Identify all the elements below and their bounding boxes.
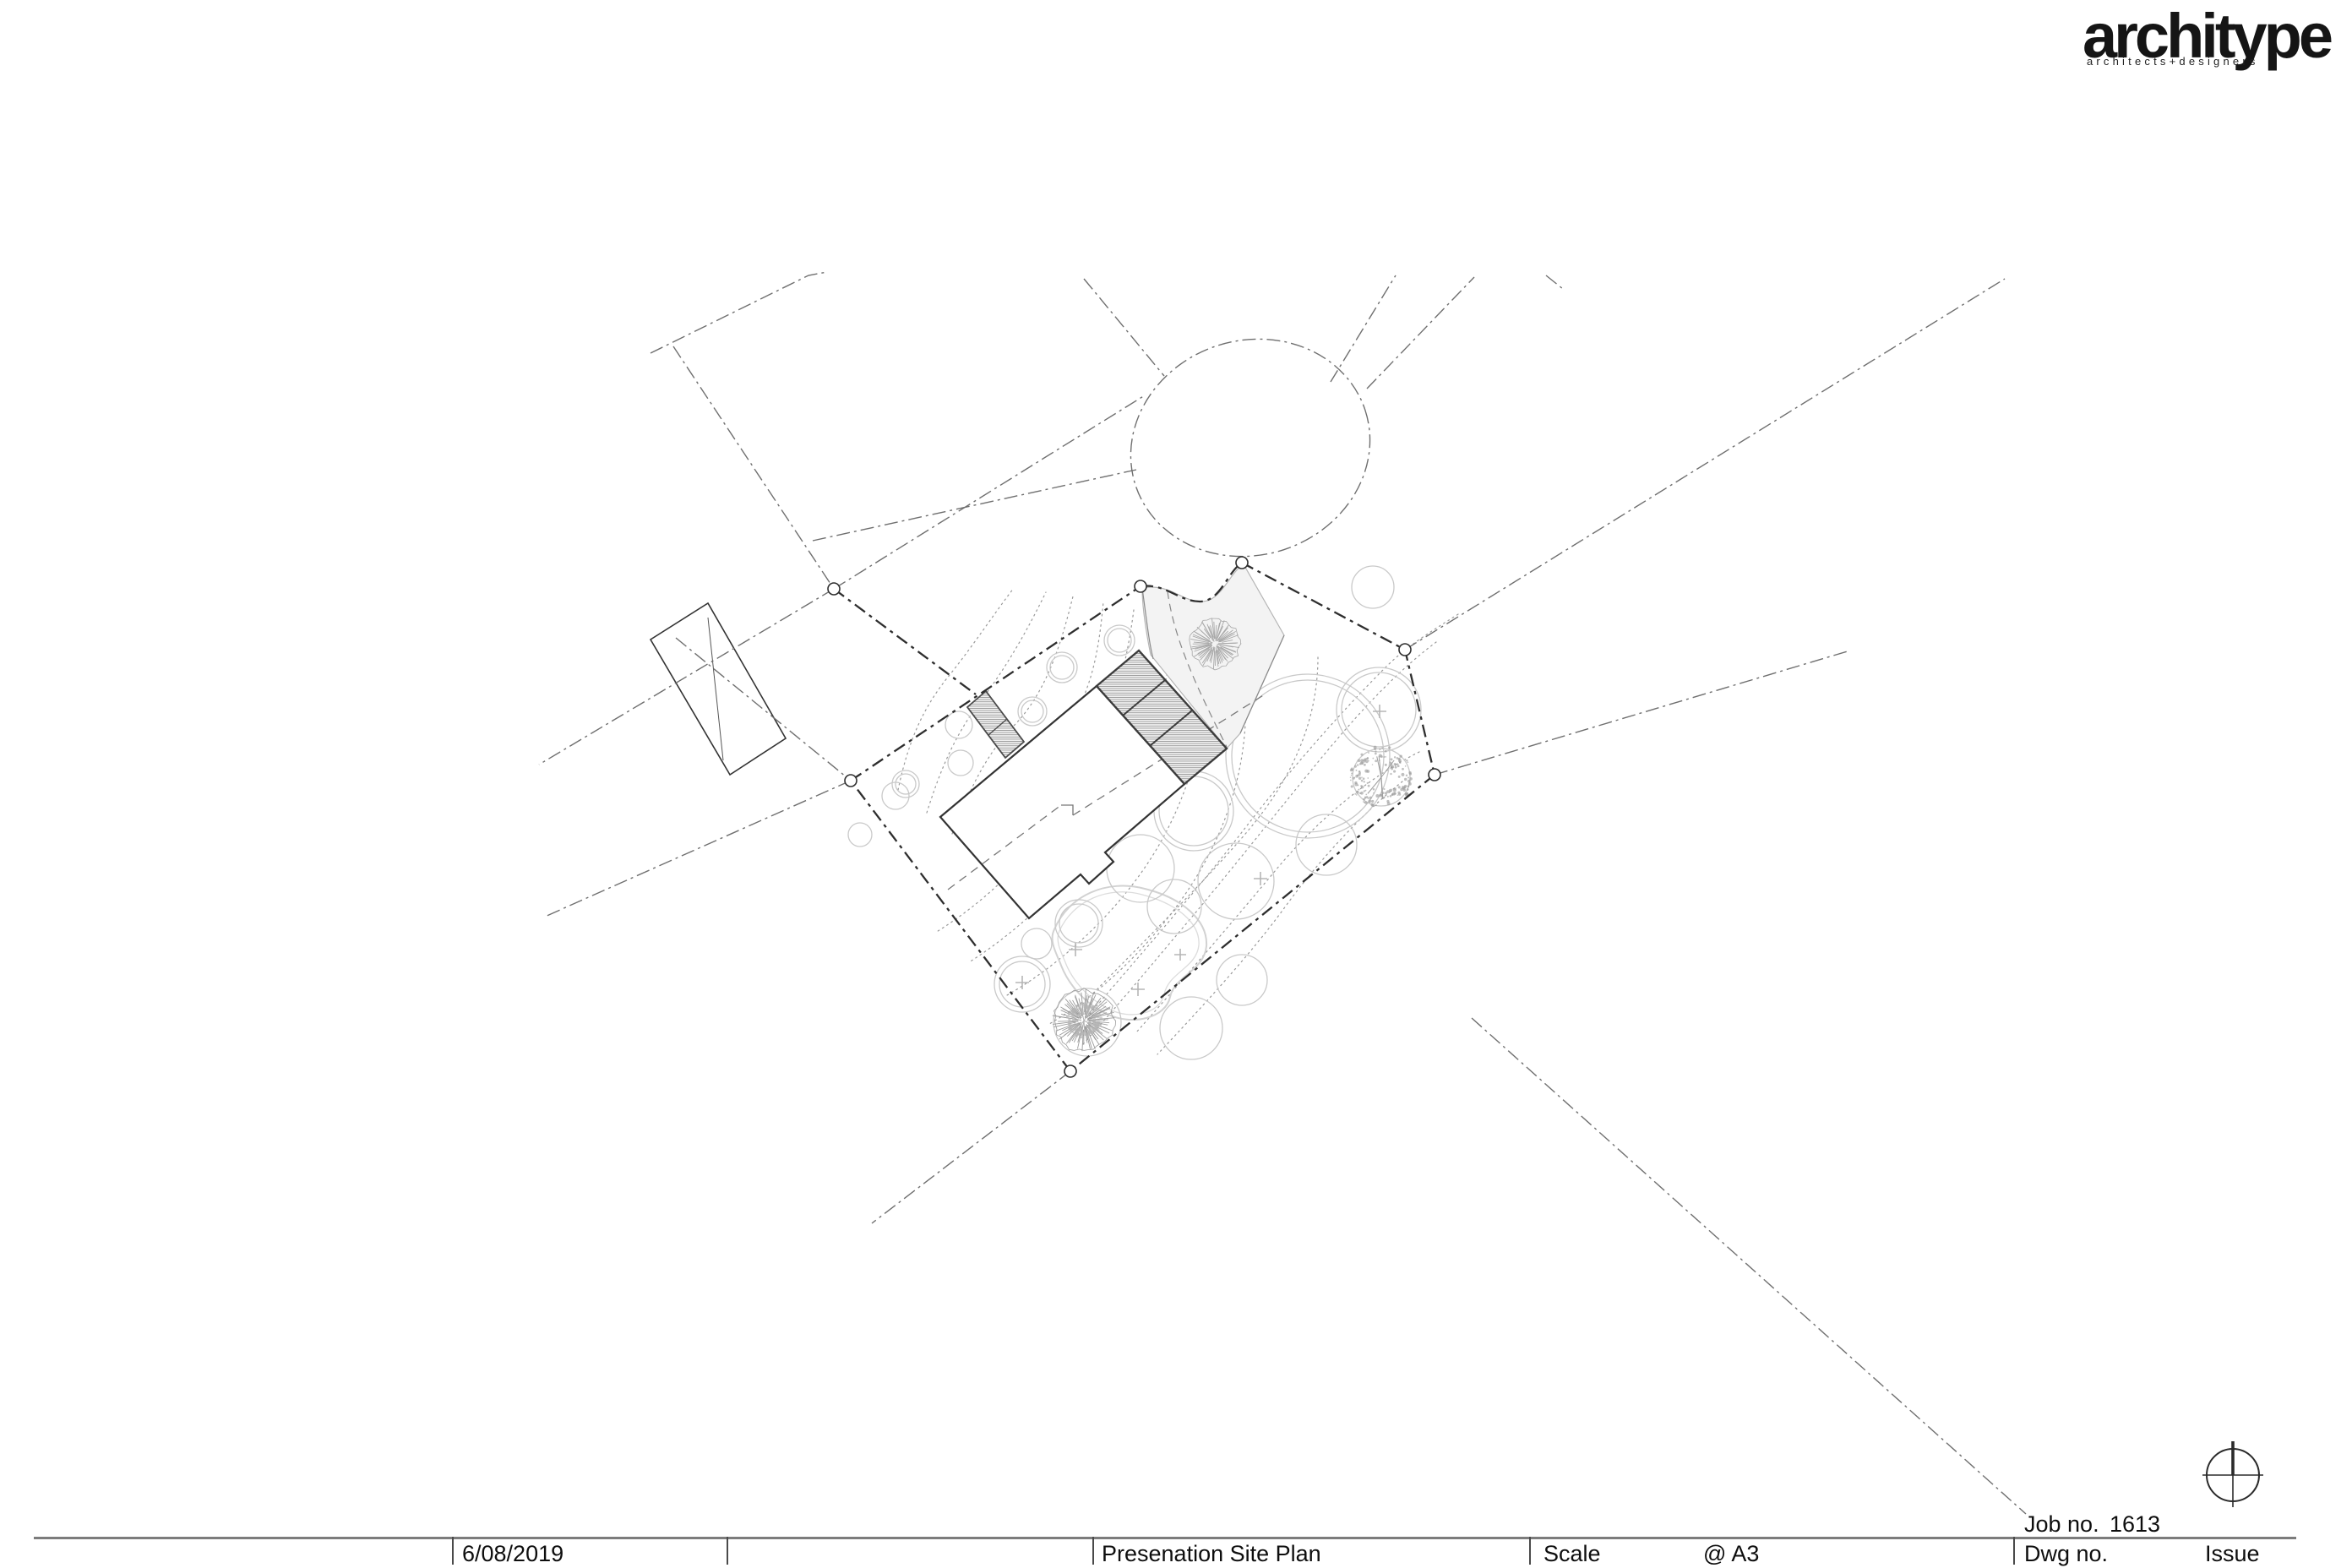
cul-de-sac <box>1102 308 1398 587</box>
dwg-number-label: Dwg no. <box>2024 1541 2108 1567</box>
drawing-title: Presenation Site Plan <box>1102 1541 1321 1567</box>
scale-label: Scale <box>1543 1541 1601 1567</box>
garden-path-outline-2 <box>1058 892 1199 1015</box>
job-number-label: Job no. <box>2024 1511 2099 1538</box>
title-block-rule <box>34 1537 2296 1539</box>
logo: architype architects+designers <box>2082 5 2330 67</box>
title-block-divider <box>1529 1537 1531 1565</box>
road-centerlines <box>539 272 2026 1514</box>
title-block-divider <box>1092 1537 1094 1565</box>
north-symbol-icon <box>2202 1441 2263 1507</box>
sheet: architype architects+designers Job no. 1… <box>0 0 2352 1568</box>
date-value: 6/08/2019 <box>462 1541 563 1567</box>
neighbour-building <box>651 603 786 775</box>
title-block-divider <box>2013 1537 2015 1565</box>
issue-label: Issue <box>2205 1541 2260 1567</box>
scale-value: @ A3 <box>1703 1541 1759 1567</box>
title-block-divider <box>452 1537 454 1565</box>
job-number-value: 1613 <box>2110 1511 2160 1538</box>
title-block-divider <box>727 1537 728 1565</box>
site-plan-drawing <box>0 0 2352 1568</box>
